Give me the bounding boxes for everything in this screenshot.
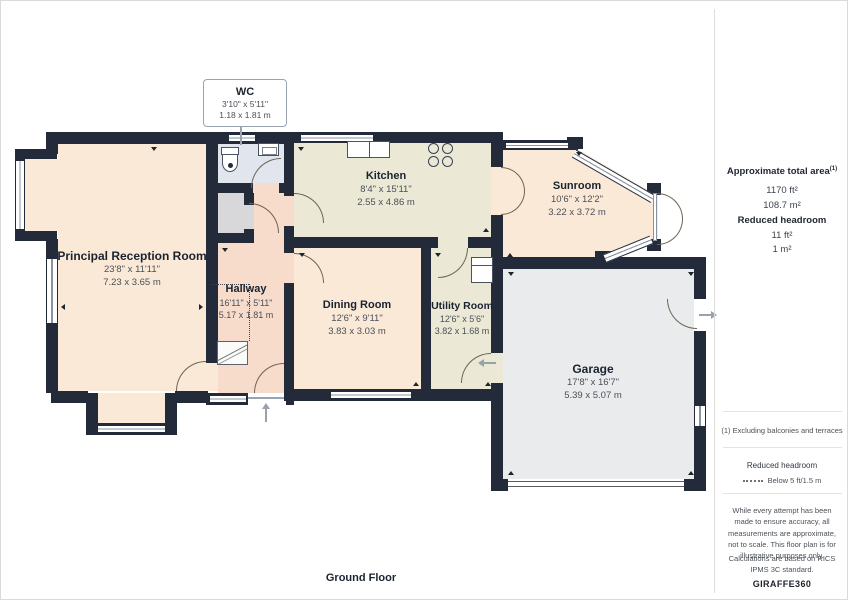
window [15, 159, 25, 231]
window-cap [15, 149, 25, 161]
kitchen-sink-divider [369, 142, 370, 157]
wall [491, 257, 706, 269]
hob-burner [442, 156, 453, 167]
room-dims-imperial: 23'8" x 11'11" [57, 264, 206, 277]
floor-title: Ground Floor [326, 572, 396, 584]
divider [723, 447, 842, 448]
dimension-tick [508, 471, 514, 475]
window [46, 259, 58, 323]
wall [421, 248, 431, 389]
window [229, 134, 255, 142]
total-area-label: Approximate total area [727, 166, 830, 177]
wall [284, 237, 438, 248]
wall [491, 383, 503, 491]
dimension-tick [151, 147, 157, 151]
room-dims-imperial: 12'6" x 5'6" [431, 313, 493, 325]
window [694, 406, 706, 426]
wall [206, 233, 254, 243]
dimension-tick [688, 272, 694, 276]
kitchen-sink [347, 141, 390, 158]
total-area-imperial: 1170 ft² [715, 185, 848, 196]
door-gap [206, 363, 218, 391]
dimension-tick [222, 248, 228, 252]
room-label-kitchen: Kitchen 8'4" x 15'11" 2.55 x 4.86 m [357, 169, 415, 209]
dimension-tick [298, 147, 304, 151]
window [506, 142, 568, 149]
room-name: Dining Room [323, 298, 391, 313]
room-dims-metric: 3.83 x 3.03 m [323, 326, 391, 339]
toilet-seat-dot [228, 163, 233, 168]
brand-name-part1: GIRAFFE [753, 579, 795, 589]
dimension-tick [61, 304, 65, 310]
dimension-tick [483, 228, 489, 232]
standard-text: Calculations are based on RICS IPMS 3C s… [727, 553, 837, 576]
room-dims-metric: 3.22 x 3.72 m [548, 207, 606, 220]
room-dims-imperial: 3'10" x 5'11" [222, 99, 268, 110]
door-gap [284, 253, 294, 283]
wall [165, 393, 177, 427]
stair-line [217, 346, 248, 365]
stairs [217, 341, 248, 365]
dimension-tick [508, 272, 514, 276]
arrow-line [699, 314, 711, 316]
wall [51, 391, 88, 403]
wall [175, 391, 208, 403]
dimension-tick [576, 152, 582, 156]
room-dims-metric: 5.39 x 5.07 m [564, 390, 622, 403]
room-name: Sunroom [548, 179, 606, 194]
reduced-headroom-imperial: 11 ft² [715, 230, 848, 241]
room-label-hallway: Hallway 16'11" x 5'11" 5.17 x 1.81 m [219, 282, 274, 321]
room-name: Principal Reception Room [57, 248, 206, 264]
room-label-garage: Garage 17'8" x 16'7" 5.39 x 5.07 m [564, 361, 622, 403]
wall [46, 239, 58, 261]
room-name: Hallway [219, 282, 274, 297]
utility-garage-arrow-icon [478, 357, 496, 369]
room-label-sunroom: Sunroom 10'6" x 12'2" 3.22 x 3.72 m [548, 179, 606, 219]
room-dims-metric: 3.82 x 1.68 m [431, 325, 493, 337]
dimension-tick [413, 382, 419, 386]
wall [694, 331, 706, 406]
wall [284, 283, 294, 393]
door-arc [657, 193, 683, 219]
floor-reception-left-bay [23, 159, 63, 231]
floorplan-page: WC 3'10" x 5'11" 1.18 x 1.81 m Principal… [0, 0, 848, 600]
dimension-tick [299, 253, 305, 257]
dimension-tick [199, 304, 203, 310]
boiler-line [472, 265, 492, 266]
wall [491, 215, 503, 248]
sidebar: Approximate total area(1) 1170 ft² 108.7… [714, 9, 848, 593]
legend-row: Below 5 ft/1.5 m [715, 476, 848, 485]
window [98, 425, 165, 433]
garage-door [508, 481, 684, 487]
reduced-headroom-heading: Reduced headroom [715, 215, 848, 226]
wc-sink-basin [262, 147, 277, 155]
door-gap [284, 196, 294, 226]
dimension-tick [435, 253, 441, 257]
stair-line [217, 342, 248, 362]
wall [206, 183, 253, 193]
total-area-heading: Approximate total area(1) [715, 166, 848, 177]
dotted-line-icon [743, 480, 763, 482]
hob [428, 143, 454, 167]
wall [491, 479, 508, 491]
dimension-tick [485, 382, 491, 386]
room-label-principal-reception-room: Principal Reception Room 23'8" x 11'11" … [57, 248, 206, 290]
door-gap [438, 237, 468, 248]
wall [206, 144, 218, 363]
room-name: Utility Room [431, 299, 493, 313]
floor-storage [218, 193, 244, 233]
hob-burner [428, 143, 439, 154]
wall [286, 393, 294, 405]
hob-burner [442, 143, 453, 154]
wall [46, 321, 58, 393]
reduced-headroom-metric: 1 m² [715, 244, 848, 255]
room-label-utility-room: Utility Room 12'6" x 5'6" 3.82 x 1.68 m [431, 299, 493, 337]
wall [284, 248, 294, 253]
divider [723, 411, 842, 412]
room-dims-metric: 7.23 x 3.65 m [57, 277, 206, 290]
floor-reception-bottom-bay [96, 393, 167, 424]
arrow-line [484, 362, 496, 364]
entry-arrow-icon [260, 403, 272, 425]
divider [723, 493, 842, 494]
wall [86, 393, 98, 427]
room-dims-imperial: 17'8" x 16'7" [564, 377, 622, 390]
wall [567, 137, 583, 149]
wall [491, 132, 503, 167]
room-dims-metric: 2.55 x 4.86 m [357, 197, 415, 210]
hob-burner [428, 156, 439, 167]
room-label-dining-room: Dining Room 12'6" x 9'11" 3.83 x 3.03 m [323, 298, 391, 338]
wall [694, 257, 706, 299]
total-area-footnote-marker: (1) [830, 166, 837, 172]
room-name: Garage [564, 361, 622, 377]
room-dims-metric: 1.18 x 1.81 m [219, 110, 271, 121]
total-area-metric: 108.7 m² [715, 200, 848, 211]
room-dims-imperial: 12'6" x 9'11" [323, 313, 391, 326]
front-door-leaf [248, 397, 284, 399]
footnote-text: (1) Excluding balconies and terraces [715, 425, 848, 436]
legend-item-label: Below 5 ft/1.5 m [768, 476, 822, 485]
window-cap [15, 229, 25, 241]
room-dims-imperial: 16'11" x 5'11" [219, 297, 274, 309]
dimension-tick [688, 471, 694, 475]
room-dims-imperial: 10'6" x 12'2" [548, 194, 606, 207]
wc-callout: WC 3'10" x 5'11" 1.18 x 1.81 m [203, 79, 287, 127]
wc-sink [258, 143, 279, 156]
room-dims-metric: 5.17 x 1.81 m [219, 309, 274, 321]
dimension-tick [507, 253, 513, 257]
boiler [471, 257, 493, 283]
arrow-line [265, 408, 267, 422]
brand-name-part2: 360 [795, 579, 811, 589]
window [210, 395, 246, 403]
room-name: WC [236, 86, 254, 100]
room-dims-imperial: 8'4" x 15'11" [357, 184, 415, 197]
legend-title: Reduced headroom [715, 461, 848, 470]
wall [684, 479, 706, 491]
door-arc [657, 219, 683, 245]
wall [284, 132, 294, 196]
brand-logo: GIRAFFE360 [715, 579, 848, 589]
window [331, 391, 411, 399]
room-name: Kitchen [357, 169, 415, 184]
